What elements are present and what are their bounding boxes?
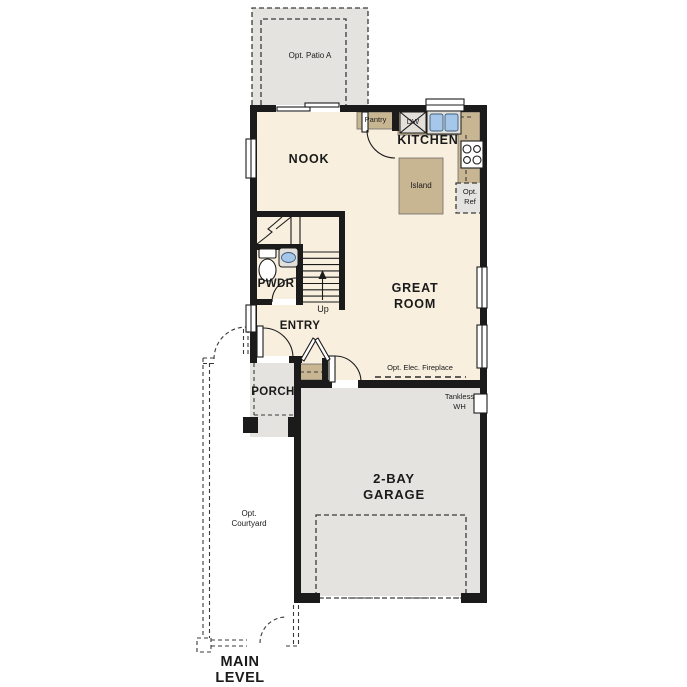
entry-door-leaf — [257, 326, 263, 357]
courtyard-post — [197, 638, 211, 652]
label-tankless-wh: Tankless WH — [441, 392, 478, 412]
powder-toilet — [259, 249, 276, 281]
courtyard-gate-top — [214, 327, 246, 359]
kitchen-sink — [427, 111, 461, 134]
label-main-level: MAIN LEVEL — [194, 654, 286, 686]
label-opt-patio: Opt. Patio A — [268, 51, 352, 61]
label-porch: PORCH — [251, 386, 295, 398]
label-opt-courtyard: Opt. Courtyard — [223, 509, 275, 530]
floor-plan-drawing — [0, 0, 687, 687]
label-island: Island — [399, 181, 443, 191]
label-entry: ENTRY — [270, 320, 330, 332]
floor-plan: Opt. Patio A NOOK Pantry DW KITCHEN Isla… — [0, 0, 687, 687]
label-fireplace: Opt. Elec. Fireplace — [378, 363, 462, 373]
label-dw: DW — [401, 117, 425, 127]
label-garage: 2-BAY GARAGE — [352, 471, 436, 502]
label-pwdr: PWDR — [254, 278, 298, 290]
garage-entry-door-leaf — [329, 356, 335, 382]
label-up: Up — [310, 304, 336, 314]
powder-sink — [279, 248, 298, 267]
label-pantry: Pantry — [357, 115, 394, 125]
label-nook: NOOK — [278, 152, 340, 168]
courtyard-gate-bottom — [260, 617, 286, 643]
label-kitchen: KITCHEN — [390, 133, 466, 149]
label-great-room: GREAT ROOM — [374, 281, 456, 312]
label-opt-ref: Opt. Ref — [457, 187, 483, 207]
